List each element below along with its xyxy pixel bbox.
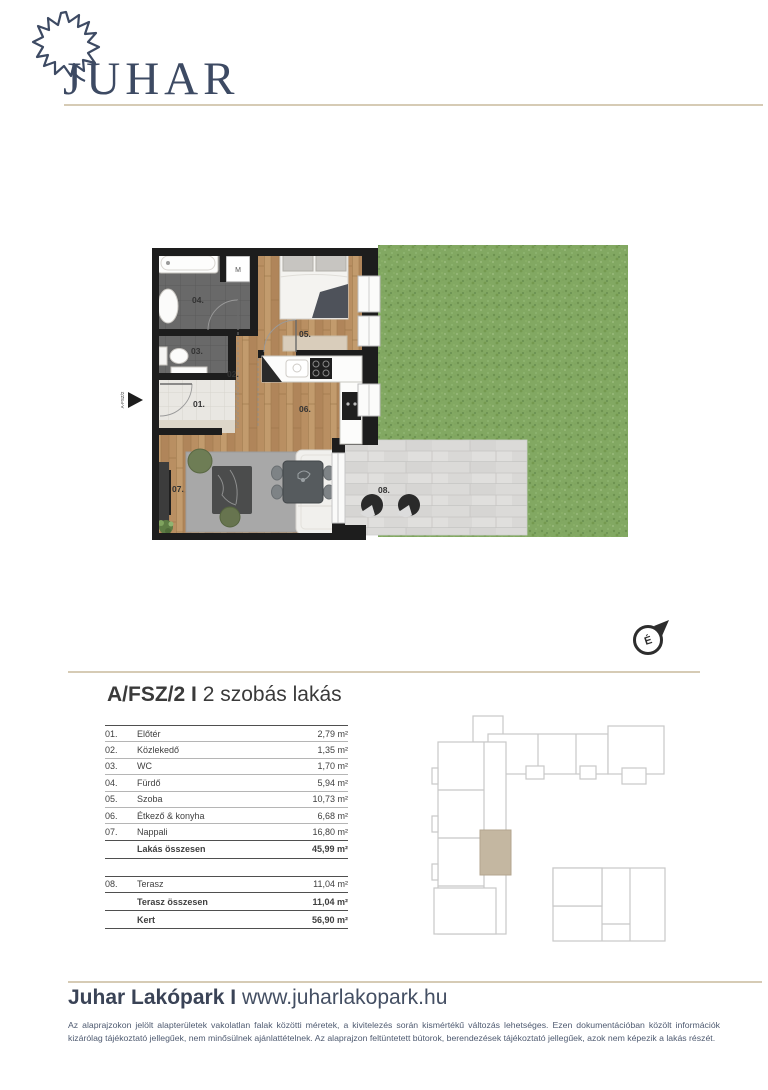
table-row: 05. Szoba 10,73 m² bbox=[105, 792, 348, 808]
footer-brand-line: Juhar Lakópark I www.juharlakopark.hu bbox=[68, 986, 447, 1010]
highlighted-unit bbox=[480, 830, 511, 875]
footer-website: www.juharlakopark.hu bbox=[242, 986, 447, 1009]
table-row: 02. Közlekedő 1,35 m² bbox=[105, 742, 348, 758]
cooktop bbox=[310, 358, 332, 379]
armchair bbox=[188, 449, 212, 473]
unit-title: A/FSZ/2 I 2 szobás lakás bbox=[107, 683, 342, 707]
room-label-01: 01. bbox=[193, 399, 205, 409]
table-row: 07. Nappali 16,80 m² bbox=[105, 824, 348, 840]
room-label-08: 08. bbox=[378, 485, 390, 495]
disclaimer-text: Az alaprajzokon jelölt alapterületek vak… bbox=[68, 1019, 720, 1045]
room-label-05: 05. bbox=[299, 329, 311, 339]
title-divider bbox=[68, 671, 700, 673]
washing-machine-label: M bbox=[235, 267, 241, 274]
bed-bench bbox=[283, 336, 347, 351]
footer-brand: Juhar Lakópark bbox=[68, 986, 224, 1009]
table-row: 04. Fürdő 5,94 m² bbox=[105, 775, 348, 791]
kitchen-sink bbox=[286, 360, 308, 377]
room-label-04: 04. bbox=[192, 295, 204, 305]
terrace bbox=[345, 440, 527, 535]
area-table: 01. Előtér 2,79 m² 02. Közlekedő 1,35 m²… bbox=[105, 725, 348, 929]
garden-total-row: Kert 56,90 m² bbox=[105, 911, 348, 929]
footer-divider bbox=[68, 981, 762, 983]
floor-plan: M bbox=[110, 238, 655, 548]
floorplan-sheet: JUHAR bbox=[0, 0, 768, 1090]
unit-title-separator: I bbox=[191, 683, 197, 706]
room-label-03: 03. bbox=[191, 346, 203, 356]
apartment-total-row: Lakás összesen 45,99 m² bbox=[105, 840, 348, 859]
table-row: 01. Előtér 2,79 m² bbox=[105, 726, 348, 742]
brand-logo-text: JUHAR bbox=[63, 52, 239, 106]
compass-north-icon: É bbox=[627, 614, 671, 660]
unit-code: A/FSZ/2 bbox=[107, 683, 185, 706]
entrance-tag: A-FSZ/2 bbox=[120, 391, 125, 408]
room-label-02: 02. bbox=[227, 369, 239, 379]
toilet bbox=[170, 349, 188, 364]
building-site-map bbox=[430, 710, 680, 952]
unit-type: 2 szobás lakás bbox=[203, 683, 342, 706]
footer-separator: I bbox=[230, 986, 236, 1009]
entrance-arrow-icon: A-FSZ/2 bbox=[120, 391, 143, 408]
header-divider bbox=[64, 104, 763, 106]
terrace-total-row: Terasz összesen 11,04 m² bbox=[105, 892, 348, 911]
side-chair bbox=[220, 507, 240, 527]
bedroom bbox=[280, 253, 348, 351]
table-row: 08. Terasz 11,04 m² bbox=[105, 877, 348, 893]
room-label-06: 06. bbox=[299, 404, 311, 414]
room-label-07: 07. bbox=[172, 484, 184, 494]
table-row: 03. WC 1,70 m² bbox=[105, 759, 348, 775]
table-row: 06. Étkező & konyha 6,68 m² bbox=[105, 808, 348, 824]
bed bbox=[280, 253, 348, 319]
washbasin bbox=[158, 289, 178, 323]
